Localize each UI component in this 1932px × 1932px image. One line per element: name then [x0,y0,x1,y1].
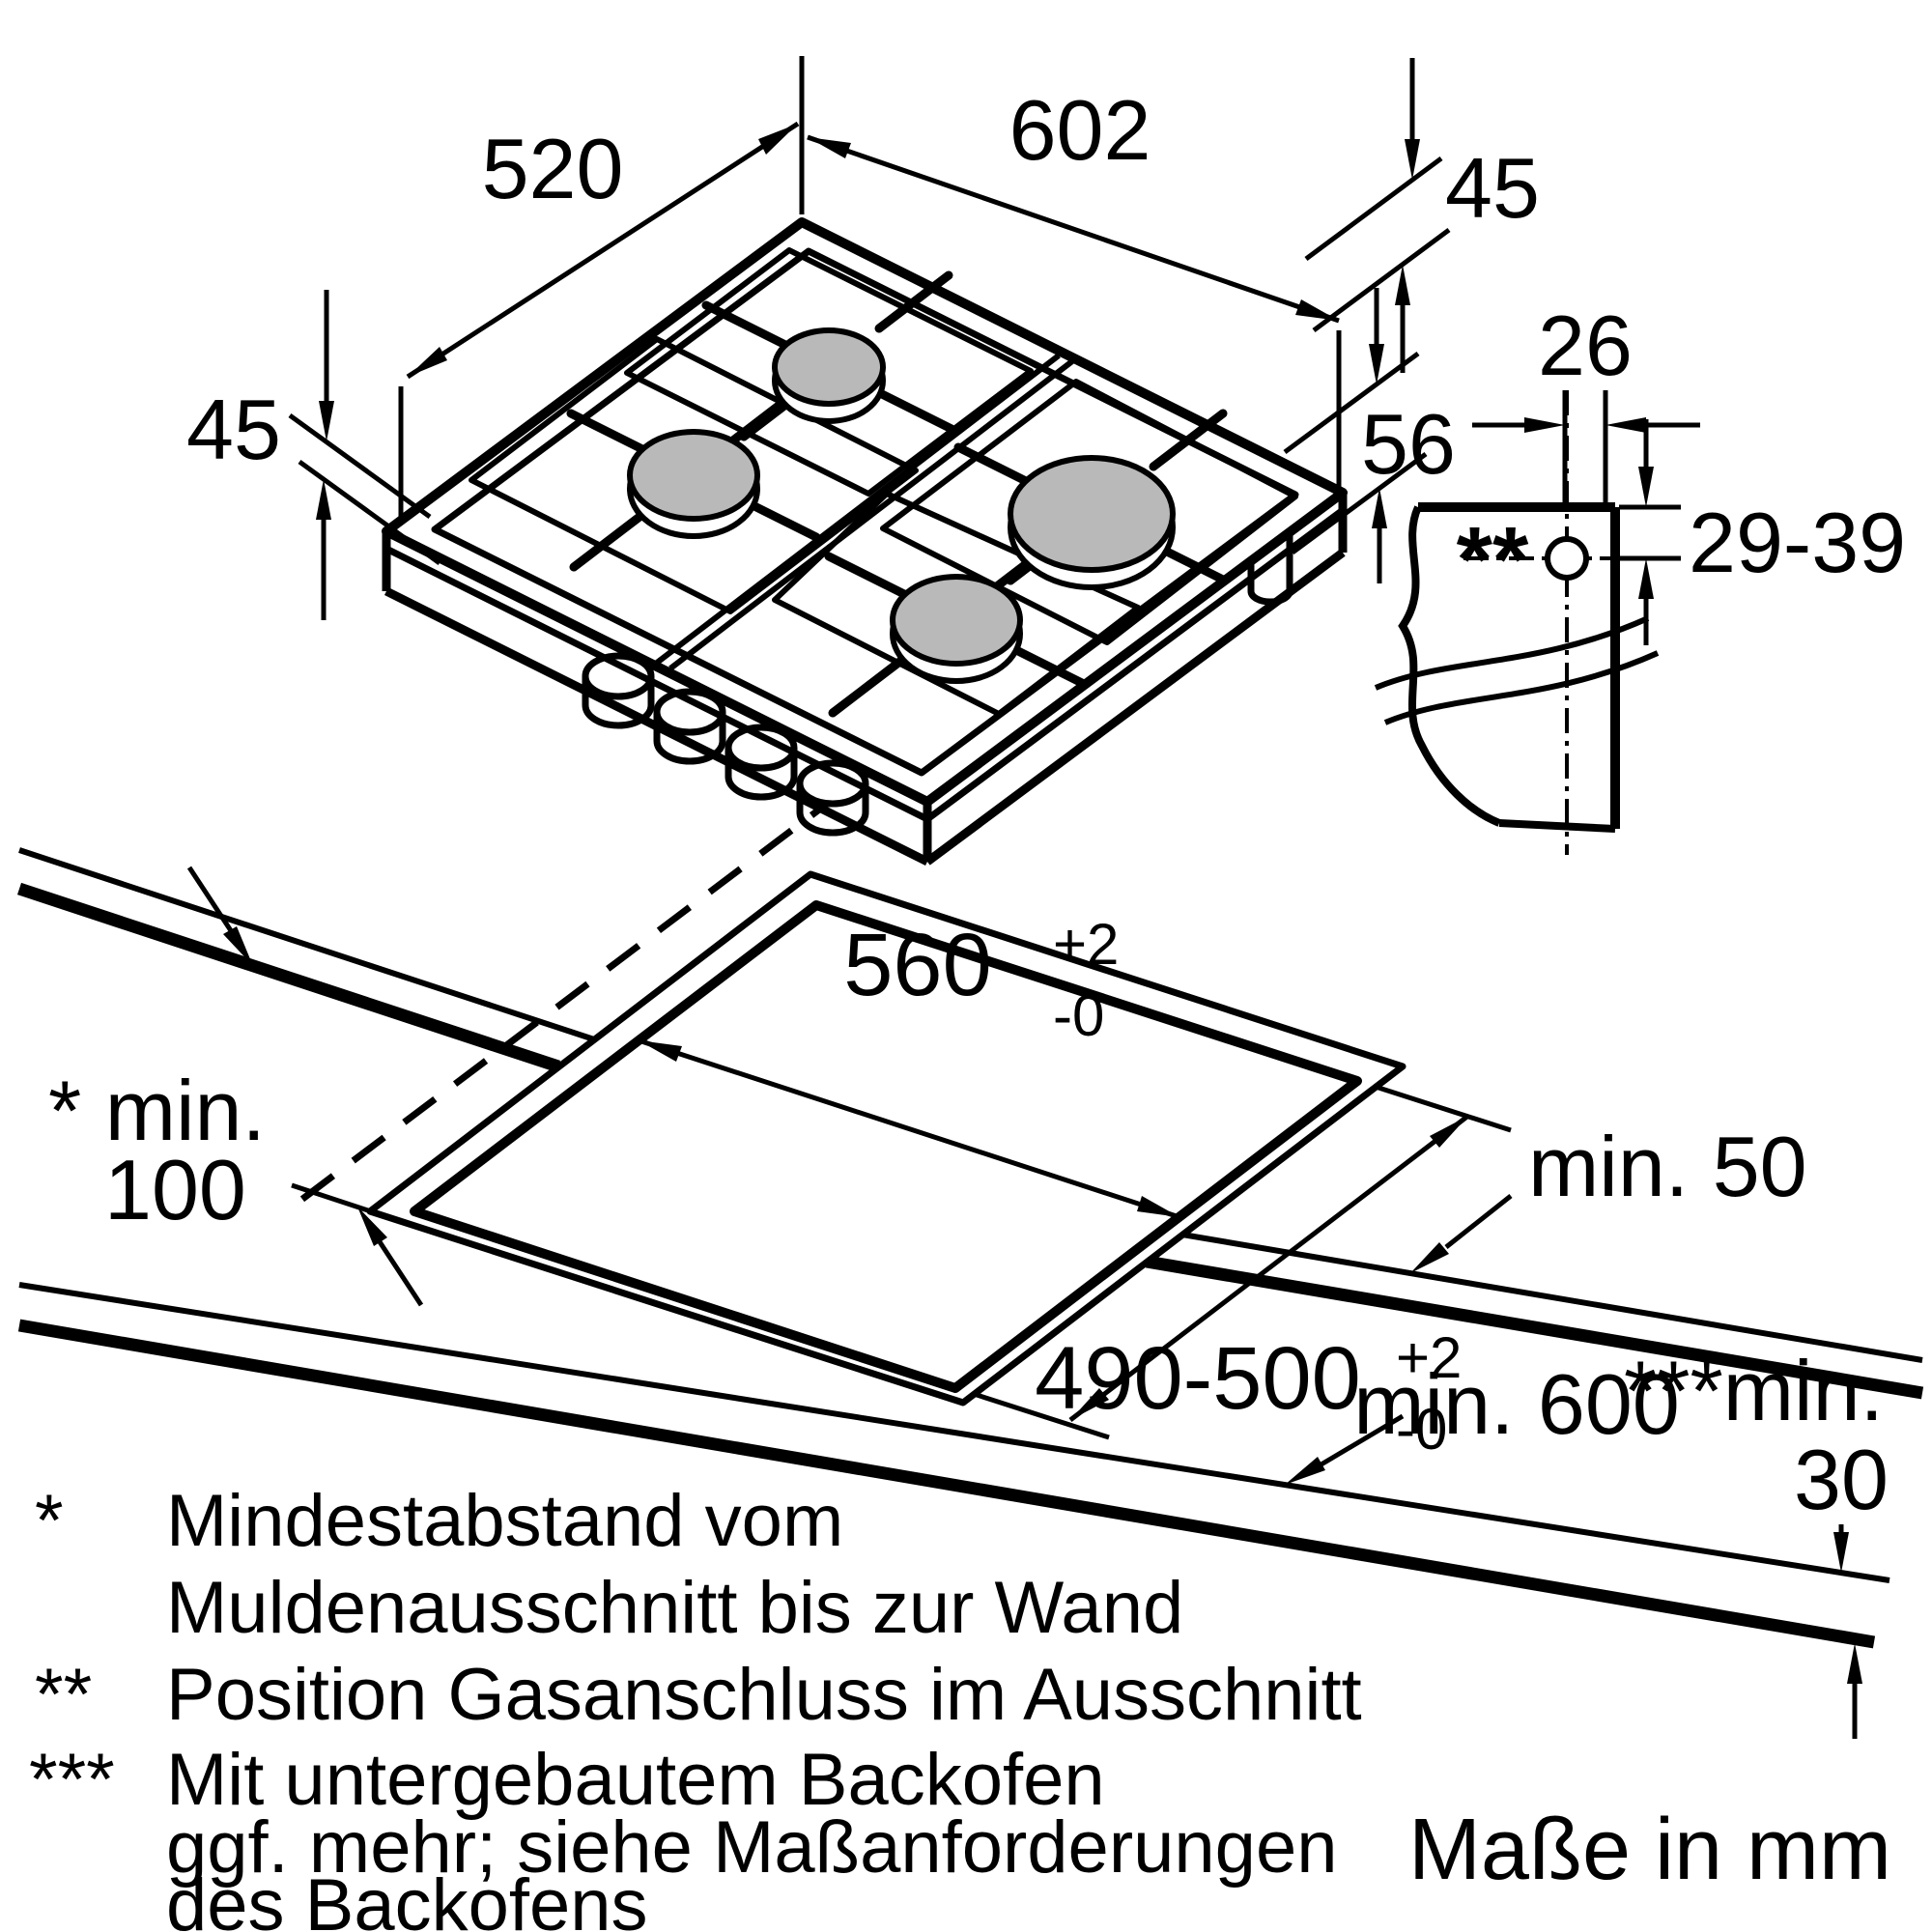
stem-min50 [1446,1196,1511,1247]
footnote-2-marker: ** [35,1654,92,1736]
hob-drawing [386,222,1343,862]
wall-line-thick-left [19,889,558,1066]
footnote-3-marker: *** [29,1739,115,1821]
label-min-side-50: min. 50 [1528,1119,1807,1214]
footnote-1-line-1: Mindestabstand vom [166,1480,843,1562]
arrowhead-min30-down [1833,1532,1849,1573]
label-min-oven: ***min. [1624,1343,1884,1438]
stem-min100-b [379,1240,421,1305]
label-min-wall-value: 100 [104,1142,246,1237]
label-gas-depth-2939: 29-39 [1689,495,1906,590]
footnote-1-line-2: Muldenausschnitt bis zur Wand [166,1567,1183,1649]
arrowhead-min600 [1285,1457,1325,1485]
arrowhead-min50 [1410,1242,1449,1273]
tick-490-top [1376,1087,1511,1130]
arrowhead-2939-down [1638,467,1654,507]
label-560-tol-minus: -0 [1053,983,1104,1048]
arrowhead-2939-up [1638,558,1654,599]
burner-right-cap [1010,458,1173,570]
wall-line-thin-left [19,850,594,1039]
label-height-45-left: 45 [186,382,281,477]
burner-front-cap [893,577,1020,664]
gas-connection-detail: ** 26 29-39 [1376,298,1906,855]
tick-45l-top [290,415,430,517]
footnote-3-line-3: des Backofens [166,1864,648,1932]
arrowhead-min30-up [1847,1643,1862,1684]
footnote-2-line-1: Position Gasanschluss im Ausschnitt [166,1654,1362,1736]
gas-connection-point [1548,539,1586,578]
label-min-oven-value: 30 [1794,1432,1889,1527]
label-detail-marker: ** [1457,508,1529,611]
label-height-45-right: 45 [1445,140,1540,236]
burner-left-cap [630,432,757,519]
detail-bottom-edge [1499,823,1615,829]
arrowhead-520-b [408,347,447,377]
burner-back-cap [775,330,883,404]
installation-diagram: 520 602 45 45 56 [0,0,1932,1932]
label-560-tol-plus: +2 [1053,912,1119,977]
arrowhead-26-left [1524,417,1565,433]
units-note: Maße in mm [1408,1802,1891,1898]
label-cutout-width-560: 560 [843,916,992,1014]
label-depth-520: 520 [482,121,624,216]
label-cutout-depth-490: 490-500 [1035,1329,1361,1428]
arrowhead-26-right [1605,417,1646,433]
footnote-1-marker: * [35,1480,64,1562]
tick-45r-bottom [1314,230,1449,330]
arrowhead-602-a [808,137,851,158]
stem-min100-a [189,867,232,932]
tick-45r-top [1306,158,1441,259]
arrowhead-490-a [1430,1116,1468,1148]
diagram-canvas: 520 602 45 45 56 [0,0,1932,1932]
label-width-602: 602 [1009,82,1151,178]
arrowhead-520-a [758,124,798,155]
label-below-56: 56 [1361,396,1456,492]
footnotes: * Mindestabstand vom Muldenausschnitt bi… [29,1480,1362,1932]
label-gas-offset-26: 26 [1538,298,1633,393]
